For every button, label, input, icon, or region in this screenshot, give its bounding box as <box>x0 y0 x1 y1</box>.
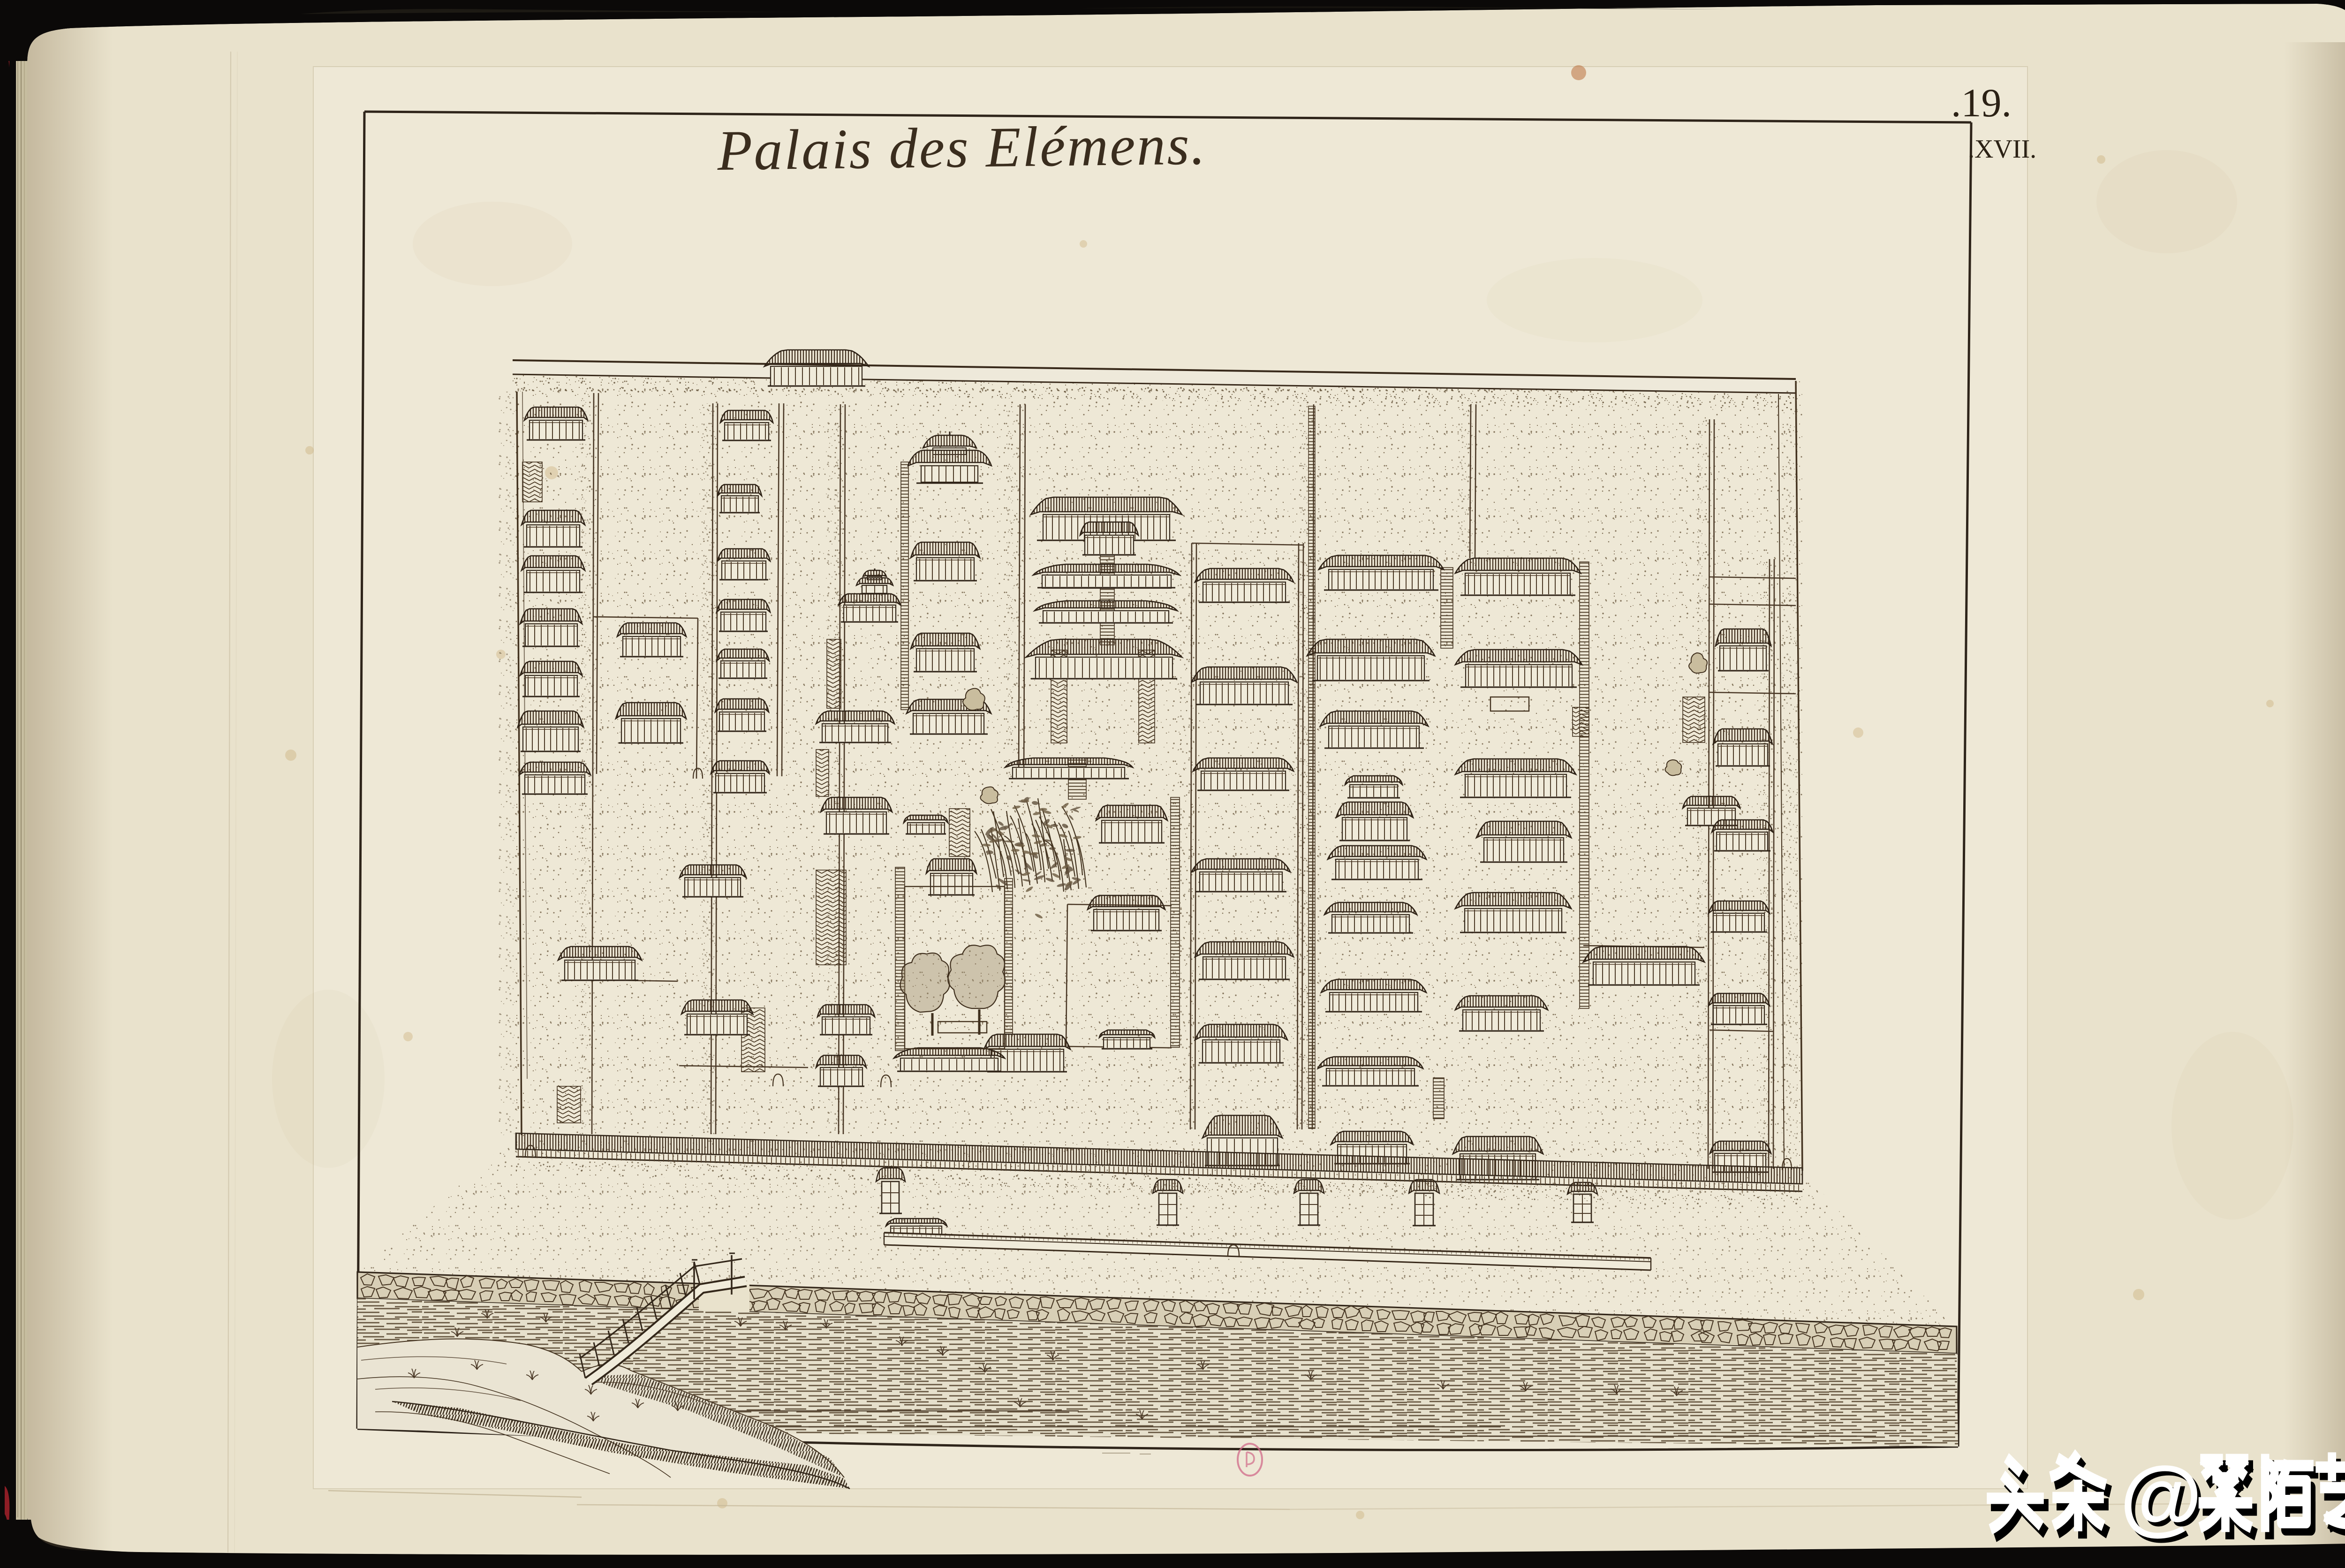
svg-text:.19.: .19. <box>1951 80 2012 125</box>
svg-text:@: @ <box>2120 1449 2202 1544</box>
svg-text:.XVII.: .XVII. <box>1968 135 2036 164</box>
svg-text:Palais des Elémens.: Palais des Elémens. <box>717 113 1206 182</box>
